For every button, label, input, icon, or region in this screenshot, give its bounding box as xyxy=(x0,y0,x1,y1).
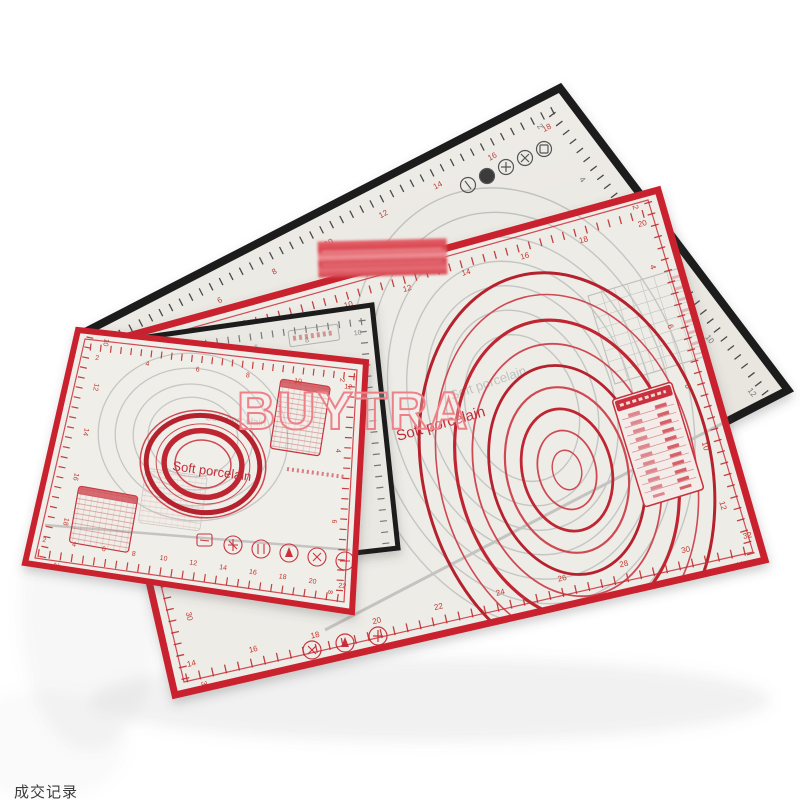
ruler-number: 10 xyxy=(353,329,362,337)
ruler-number: 12 xyxy=(189,559,198,567)
censored-brand-label xyxy=(318,238,448,277)
ruler-number: 6 xyxy=(330,519,337,523)
measurement-grid-table-2 xyxy=(69,486,138,553)
mat-red-small: Soft porcelain Soft porcelain xyxy=(25,330,366,612)
photo-canvas: 24681012141618 24681012 xyxy=(0,0,800,800)
product-photo: 24681012141618 24681012 xyxy=(0,0,800,800)
ruler-number: 4 xyxy=(334,449,341,453)
ruler-number: 14 xyxy=(219,564,228,572)
buytra-watermark: BUYTRA xyxy=(237,382,470,441)
ruler-number: 18 xyxy=(278,573,287,581)
transaction-records-caption: 成交记录 xyxy=(14,783,78,800)
ruler-number: 20 xyxy=(308,578,317,586)
ruler-number: 10 xyxy=(159,555,168,563)
ruler-number: 8 xyxy=(326,590,333,594)
ruler-number: 16 xyxy=(248,569,257,577)
fork-knife-icon xyxy=(480,169,495,184)
